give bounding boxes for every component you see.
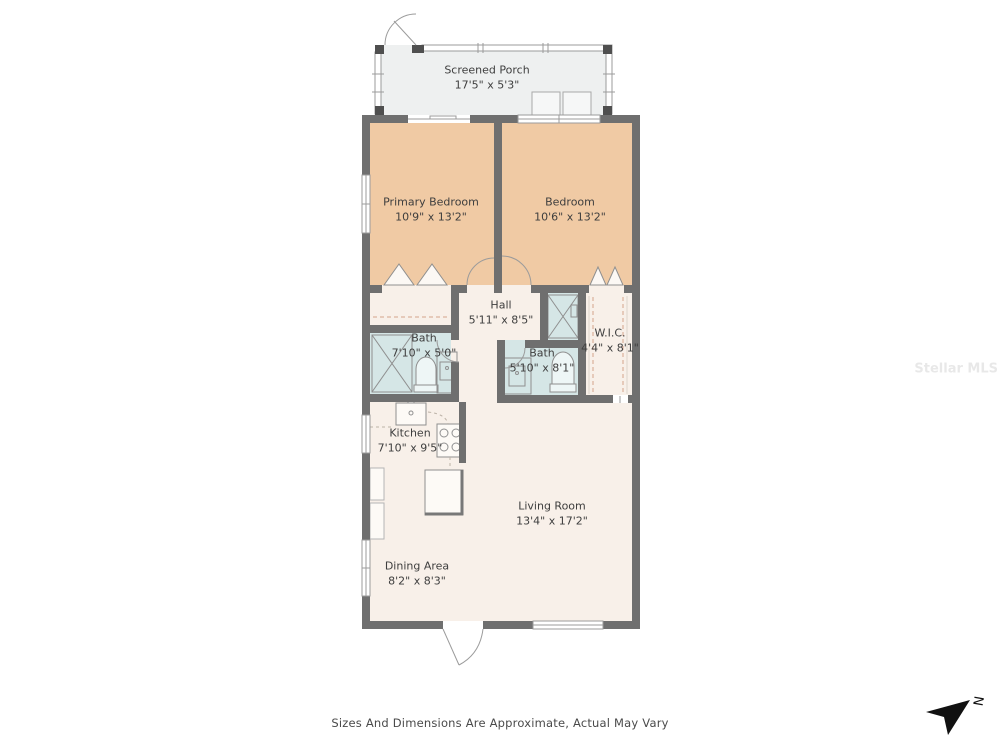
floor-plan-page: Screened Porch 17'5" x 5'3" Primary Bedr…: [0, 0, 1000, 750]
disclaimer-text: Sizes And Dimensions Are Approximate, Ac…: [331, 716, 668, 730]
room-name: Kitchen: [378, 426, 443, 441]
room-name: Screened Porch: [444, 63, 529, 78]
room-label-hall: Hall 5'11" x 8'5": [469, 298, 534, 327]
room-label-wic: W.I.C. 4'4" x 8'1": [581, 326, 639, 355]
room-name: Dining Area: [385, 559, 449, 574]
room-label-bath-hall: Bath 5'10" x 8'1": [510, 346, 575, 375]
room-label-primary-bedroom: Primary Bedroom 10'9" x 13'2": [383, 195, 479, 224]
room-name: Bedroom: [534, 195, 606, 210]
refrigerator-icon: [425, 470, 463, 515]
room-dims: 5'11" x 8'5": [469, 313, 534, 328]
counter-icon: [370, 468, 384, 539]
room-dims: 13'4" x 17'2": [516, 514, 588, 529]
room-name: Bath: [510, 346, 575, 361]
north-arrow-icon: N: [920, 690, 1000, 745]
north-arrow-shape: [926, 700, 970, 735]
room-dims: 5'10" x 8'1": [510, 361, 575, 376]
floor-plan-drawing: [0, 0, 1000, 750]
room-label-screened-porch: Screened Porch 17'5" x 5'3": [444, 63, 529, 92]
room-label-living-room: Living Room 13'4" x 17'2": [516, 499, 588, 528]
north-arrow-label: N: [969, 695, 985, 707]
watermark: Stellar MLS: [914, 362, 998, 377]
room-name: W.I.C.: [581, 326, 639, 341]
room-dims: 17'5" x 5'3": [444, 78, 529, 93]
room-label-dining-area: Dining Area 8'2" x 8'3": [385, 559, 449, 588]
room-dims: 4'4" x 8'1": [581, 341, 639, 356]
room-dims: 10'6" x 13'2": [534, 210, 606, 225]
room-dims: 7'10" x 9'5": [378, 441, 443, 456]
porch-door-arc: [385, 14, 416, 45]
room-dims: 8'2" x 8'3": [385, 574, 449, 589]
room-label-bedroom: Bedroom 10'6" x 13'2": [534, 195, 606, 224]
room-label-kitchen: Kitchen 7'10" x 9'5": [378, 426, 443, 455]
room-dims: 10'9" x 13'2": [383, 210, 479, 225]
room-name: Living Room: [516, 499, 588, 514]
room-dims: 7'10" x 5'0": [392, 346, 457, 361]
room-name: Primary Bedroom: [383, 195, 479, 210]
room-name: Bath: [392, 331, 457, 346]
entry-door-opening: [443, 621, 483, 629]
entry-door-arc: [443, 629, 483, 665]
room-name: Hall: [469, 298, 534, 313]
toilet-icon: [414, 357, 438, 392]
room-label-bath-main: Bath 7'10" x 5'0": [392, 331, 457, 360]
